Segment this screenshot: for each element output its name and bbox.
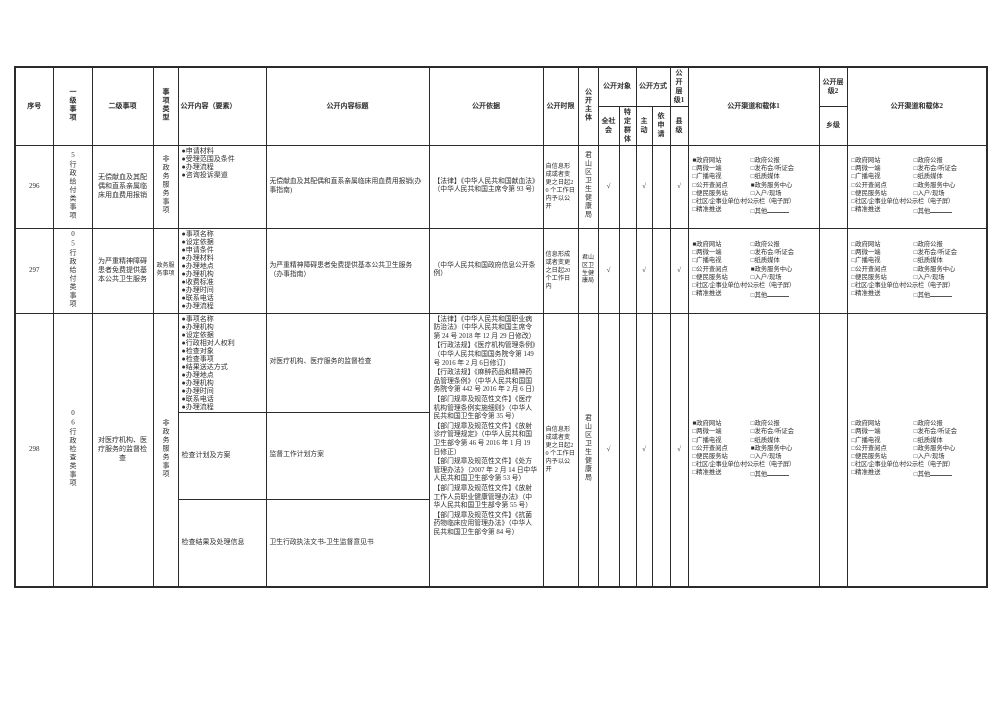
unchecked-checkbox: □纸质媒体 [751, 173, 817, 181]
unchecked-checkbox: □精准推送 [693, 206, 751, 216]
unchecked-checkbox: □公开查阅点 [693, 182, 751, 190]
bullet-item: ●办理地点 [182, 262, 263, 270]
channels-town: □政府网站□政府公报□两微一端□发布会/听证会□广播电视□纸质媒体□公开查阅点□… [847, 228, 987, 313]
level2-item: 无偿献血及其配偶和直系亲属临床用血费用报销 [92, 145, 153, 228]
bullet-item: ●办理机构 [182, 379, 263, 387]
basis-citations: 【法律】《中华人民共和国献血法》（中华人民共和国主席令第 93 号） [434, 178, 539, 195]
bullet-item: ●检查事项 [182, 355, 263, 363]
bullet-item: ●事项名称 [182, 230, 263, 238]
header-level2-item: 二级事项 [92, 67, 153, 145]
checked-checkbox: ■政府网站 [693, 241, 751, 249]
unchecked-checkbox: □入户/现场 [751, 190, 817, 198]
header-item-type: 事项类型 [153, 67, 178, 145]
bullet-item: ●联系电话 [182, 395, 263, 403]
channel-line: □公开查阅点□政务服务中心 [852, 266, 985, 274]
bullet-list: ●事项名称●办理机构●设定依据●行政相对人权利●检查对象●检查事项●结果送达方式… [182, 315, 263, 411]
header-county-level: 县级 [670, 106, 688, 145]
checked-checkbox: ■政务服务中心 [751, 182, 817, 190]
unchecked-checkbox: □公开查阅点 [693, 445, 751, 453]
header-all-society: 全社会 [598, 106, 619, 145]
header-content-title: 公开内容标题 [266, 67, 429, 145]
content-elements: ●申请材料●受理范围及条件●办理流程●咨询投诉渠道 [178, 145, 266, 228]
header-subject: 公开主体 [578, 67, 598, 145]
citation: 【部门规章及规范性文件】《抗菌药物临床应用管理办法》（中华人民共和国卫生部令第 … [434, 512, 539, 538]
bullet-item: ●办理机构 [182, 270, 263, 278]
content-title: 为严重精神障碍患者免费提供基本公共卫生服务 （办事指南） [266, 228, 429, 313]
check-town-level [819, 313, 847, 587]
unchecked-checkbox: □入户/现场 [914, 190, 984, 198]
check-town-level [819, 145, 847, 228]
content-elements: 检查计划及方案 [178, 412, 266, 499]
content-elements: 检查结果及处理信息 [178, 499, 266, 587]
channel-line: □便民服务站□入户/现场 [693, 274, 817, 282]
citation: 【法律】《中华人民共和国职业病防治法》（中华人民共和国主席令第 24 号 201… [434, 316, 539, 342]
channel-line: □广播电视□纸质媒体 [852, 437, 985, 445]
citation: 【部门规章及规范性文件】《放射诊疗管理规定》（中华人民共和国卫生部令第 46 号… [434, 423, 539, 457]
channel-line: □广播电视□纸质媒体 [852, 173, 985, 181]
channel-line: □两微一端□发布会/听证会 [852, 428, 985, 436]
header-tier1-group: 公开层级1 [670, 67, 688, 106]
table-row: 29806行政检查类事项对医疗机构、医疗服务的监督检查非政务服务事项●事项名称●… [15, 313, 987, 412]
disclosure-subject: 君山区卫生健康局 [578, 313, 598, 587]
content-title: 卫生行政执法文书-卫生监督意见书 [266, 499, 429, 587]
table-row: 29705行政给付类事项为严重精神障碍患者免费提供基本公共卫生服务政务服务事项●… [15, 228, 987, 313]
unchecked-checkbox: □政府公报 [914, 157, 984, 165]
check-town-level [819, 228, 847, 313]
channel-line: □政府网站□政府公报 [852, 241, 985, 249]
unchecked-checkbox: □其他 [751, 206, 817, 216]
channel-line: □精准推送□其他 [693, 206, 817, 216]
level1-item: 06行政检查类事项 [53, 313, 92, 587]
channel-line: □公开查阅点■政务服务中心 [693, 266, 817, 274]
unchecked-checkbox: □政府公报 [751, 157, 817, 165]
content-elements: ●事项名称●办理机构●设定依据●行政相对人权利●检查对象●检查事项●结果送达方式… [178, 313, 266, 412]
check-all-society: √ [598, 228, 619, 313]
header-serial-no: 序号 [15, 67, 53, 145]
channel-line: □精准推送□其他 [693, 469, 817, 479]
bullet-item: ●设定依据 [182, 238, 263, 246]
unchecked-checkbox: □纸质媒体 [751, 257, 817, 265]
unchecked-checkbox: □政务服务中心 [914, 182, 984, 190]
channel-line: □精准推送□其他 [852, 206, 985, 216]
bullet-item: ●办理材料 [182, 254, 263, 262]
unchecked-checkbox: □便民服务站 [852, 453, 914, 461]
citation: 【法律】《中华人民共和国献血法》（中华人民共和国主席令第 93 号） [434, 178, 539, 195]
bullet-item: ●受理范围及条件 [182, 155, 263, 163]
basis: 【法律】《中华人民共和国职业病防治法》（中华人民共和国主席令第 24 号 201… [429, 313, 543, 587]
row-number: 297 [15, 228, 53, 313]
bullet-item: ●事项名称 [182, 315, 263, 323]
header-specific-group: 特定群体 [619, 106, 636, 145]
unchecked-checkbox: □发布会/听证会 [751, 428, 817, 436]
unchecked-checkbox: □便民服务站 [852, 274, 914, 282]
unchecked-checkbox: □公开查阅点 [852, 445, 914, 453]
item-type: 政务服务事项 [153, 228, 178, 313]
unchecked-checkbox: □政务服务中心 [914, 266, 984, 274]
unchecked-checkbox: □广播电视 [693, 173, 751, 181]
citation: 【行政法规】《医疗机构管理条例》（中华人民共和国国务院令第 149 号 2016… [434, 342, 539, 368]
time-limit: 自信息形成或者变更之日起20 个工作日内予以公开 [543, 145, 578, 228]
bullet-item: ●检查对象 [182, 347, 263, 355]
unchecked-checkbox: □精准推送 [693, 469, 751, 479]
channel-line: □社区/企事业单位/村公示栏（电子屏） [693, 282, 817, 290]
channel-line: □社区/企事业单位/村公示栏（电子屏） [693, 198, 817, 206]
level1-item-text: 06行政检查类事项 [69, 409, 76, 488]
unchecked-checkbox: □其他 [914, 206, 984, 216]
unchecked-checkbox: □社区/企事业单位/村公示栏（电子屏） [693, 282, 817, 290]
header-level1-item: 一级事项 [53, 67, 92, 145]
channel-line: □精准推送□其他 [852, 290, 985, 300]
other-fill-line [930, 206, 952, 213]
check-active: √ [636, 313, 652, 587]
basis-citations: 【法律】《中华人民共和国职业病防治法》（中华人民共和国主席令第 24 号 201… [434, 316, 539, 538]
check-specific-group [619, 228, 636, 313]
bullet-list: ●申请材料●受理范围及条件●办理流程●咨询投诉渠道 [182, 147, 263, 179]
header-time-limit: 公开时限 [543, 67, 578, 145]
bullet-item: ●行政相对人权利 [182, 339, 263, 347]
bullet-item: ●联系电话 [182, 294, 263, 302]
unchecked-checkbox: □纸质媒体 [914, 173, 984, 181]
header-row-top: 序号 一级事项 二级事项 事项类型 公开内容（要素） 公开内容标题 公开依据 公… [15, 67, 987, 106]
other-fill-line [767, 290, 789, 297]
level1-item-text: 05行政给付类事项 [69, 230, 76, 309]
bullet-item: ●申请条件 [182, 246, 263, 254]
channel-line: □便民服务站□入户/现场 [693, 190, 817, 198]
level2-item: 对医疗机构、医疗服务的监督检查 [92, 313, 153, 587]
unchecked-checkbox: □广播电视 [693, 437, 751, 445]
channel-line: □广播电视□纸质媒体 [693, 173, 817, 181]
other-fill-line [767, 469, 789, 476]
check-county-level: √ [670, 313, 688, 587]
unchecked-checkbox: □广播电视 [852, 173, 914, 181]
unchecked-checkbox: □精准推送 [852, 290, 914, 300]
channel-line: □便民服务站□入户/现场 [852, 274, 985, 282]
table-row: 2965行政给付类事项无偿献血及其配偶和直系亲属临床用血费用报销非政务服务事项●… [15, 145, 987, 228]
unchecked-checkbox: □发布会/听证会 [914, 428, 984, 436]
level1-item: 05行政给付类事项 [53, 228, 92, 313]
bullet-list: ●事项名称●设定依据●申请条件●办理材料●办理地点●办理机构●收费标准●办理时间… [182, 230, 263, 310]
unchecked-checkbox: □两微一端 [852, 428, 914, 436]
unchecked-checkbox: □政府公报 [914, 241, 984, 249]
check-all-society: √ [598, 313, 619, 587]
check-all-society: √ [598, 145, 619, 228]
channel-line: □便民服务站□入户/现场 [693, 453, 817, 461]
bullet-item: ●结果送达方式 [182, 363, 263, 371]
disclosure-subject-text: 君山区卫生健康局 [585, 414, 592, 482]
item-type: 非政务服务事项 [153, 145, 178, 228]
bullet-item: ●设定依据 [182, 331, 263, 339]
unchecked-checkbox: □其他 [914, 469, 984, 479]
bullet-item: ●办理流程 [182, 403, 263, 411]
unchecked-checkbox: □入户/现场 [914, 453, 984, 461]
channel-line: □政府网站□政府公报 [852, 157, 985, 165]
item-type: 非政务服务事项 [153, 313, 178, 587]
disclosure-subject-text: 君山区卫生健康局 [585, 151, 592, 219]
unchecked-checkbox: □精准推送 [693, 290, 751, 300]
unchecked-checkbox: □精准推送 [852, 469, 914, 479]
channel-line: ■政府网站□政府公报 [693, 157, 817, 165]
unchecked-checkbox: □政务服务中心 [914, 445, 984, 453]
time-limit: 自信息形成或者变更之日起20 个工作日内予以公开 [543, 313, 578, 587]
channels-town: □政府网站□政府公报□两微一端□发布会/听证会□广播电视□纸质媒体□公开查阅点□… [847, 313, 987, 587]
unchecked-checkbox: □社区/企事业单位/村公示栏（电子屏） [852, 282, 985, 290]
checked-checkbox: ■政务服务中心 [751, 266, 817, 274]
bullet-item: ●办理时间 [182, 286, 263, 294]
unchecked-checkbox: □广播电视 [852, 437, 914, 445]
check-county-level: √ [670, 145, 688, 228]
item-type-text: 非政务服务事项 [162, 155, 169, 215]
bullet-item: ●办理流程 [182, 163, 263, 171]
basis: 【法律】《中华人民共和国献血法》（中华人民共和国主席令第 93 号） [429, 145, 543, 228]
bullet-item: ●收费标准 [182, 278, 263, 286]
check-active: √ [636, 145, 652, 228]
content-title: 无偿献血及其配偶和直系亲属临床用血费用报销(办事指南) [266, 145, 429, 228]
channel-line: □公开查阅点□政务服务中心 [852, 445, 985, 453]
channel-line: □精准推送□其他 [852, 469, 985, 479]
basis: （中华人民共和国政府信息公开条例） [429, 228, 543, 313]
citation: （中华人民共和国政府信息公开条例） [434, 262, 539, 279]
unchecked-checkbox: □其他 [751, 290, 817, 300]
channel-line: □公开查阅点■政务服务中心 [693, 182, 817, 190]
unchecked-checkbox: □其他 [751, 469, 817, 479]
check-specific-group [619, 145, 636, 228]
header-town-level: 乡级 [819, 106, 847, 145]
channel-line: □便民服务站□入户/现场 [852, 453, 985, 461]
channels-county: ■政府网站□政府公报□两微一端□发布会/听证会□广播电视□纸质媒体□公开查阅点■… [688, 145, 819, 228]
channel-line: □广播电视□纸质媒体 [693, 437, 817, 445]
bullet-item: ●咨询投诉渠道 [182, 171, 263, 179]
channel-line: □广播电视□纸质媒体 [852, 257, 985, 265]
unchecked-checkbox: □公开查阅点 [852, 182, 914, 190]
channel-line: □社区/企事业单位/村公示栏（电子屏） [852, 282, 985, 290]
level2-item: 为严重精神障碍患者免费提供基本公共卫生服务 [92, 228, 153, 313]
bullet-item: ●办理时间 [182, 387, 263, 395]
unchecked-checkbox: □政府网站 [852, 157, 914, 165]
check-on-request [652, 313, 670, 587]
unchecked-checkbox: □便民服务站 [852, 190, 914, 198]
unchecked-checkbox: □两微一端 [693, 428, 751, 436]
check-on-request [652, 145, 670, 228]
channel-line: □公开查阅点□政务服务中心 [852, 182, 985, 190]
unchecked-checkbox: □社区/企事业单位/村公示栏（电子屏） [693, 198, 817, 206]
row-number: 298 [15, 313, 53, 587]
channels-town: □政府网站□政府公报□两微一端□发布会/听证会□广播电视□纸质媒体□公开查阅点□… [847, 145, 987, 228]
header-tier2-group: 公开层级2 [819, 67, 847, 106]
channel-line: ■政府网站□政府公报 [693, 241, 817, 249]
disclosure-subject: 君山区卫生健康局 [578, 145, 598, 228]
check-on-request [652, 228, 670, 313]
other-fill-line [930, 290, 952, 297]
basis-citations: （中华人民共和国政府信息公开条例） [434, 262, 539, 279]
unchecked-checkbox: □社区/企事业单位/村公示栏（电子屏） [852, 198, 985, 206]
header-on-request: 依申请 [652, 106, 670, 145]
unchecked-checkbox: □政府网站 [852, 241, 914, 249]
header-channels1: 公开渠道和载体1 [688, 67, 819, 145]
unchecked-checkbox: □政府公报 [751, 241, 817, 249]
channel-line: □便民服务站□入户/现场 [852, 190, 985, 198]
header-basis: 公开依据 [429, 67, 543, 145]
unchecked-checkbox: □便民服务站 [693, 453, 751, 461]
unchecked-checkbox: □入户/现场 [914, 274, 984, 282]
level1-item: 5行政给付类事项 [53, 145, 92, 228]
item-type-text: 非政务服务事项 [162, 419, 169, 479]
other-fill-line [930, 469, 952, 476]
disclosure-table: 序号 一级事项 二级事项 事项类型 公开内容（要素） 公开内容标题 公开依据 公… [14, 66, 988, 588]
channel-line: □社区/企事业单位/村公示栏（电子屏） [852, 198, 985, 206]
unchecked-checkbox: □公开查阅点 [852, 266, 914, 274]
row-number: 296 [15, 145, 53, 228]
content-elements: ●事项名称●设定依据●申请条件●办理材料●办理地点●办理机构●收费标准●办理时间… [178, 228, 266, 313]
header-target-group: 公开对象 [598, 67, 636, 106]
unchecked-checkbox: □其他 [914, 290, 984, 300]
table-header: 序号 一级事项 二级事项 事项类型 公开内容（要素） 公开内容标题 公开依据 公… [15, 67, 987, 145]
content-title: 监督工作计划方案 [266, 412, 429, 499]
channel-line: □两微一端□发布会/听证会 [693, 428, 817, 436]
document-page: 序号 一级事项 二级事项 事项类型 公开内容（要素） 公开内容标题 公开依据 公… [0, 0, 1000, 706]
level1-item-text: 5行政给付类事项 [69, 151, 76, 220]
bullet-item: ●办理机构 [182, 323, 263, 331]
unchecked-checkbox: □纸质媒体 [751, 437, 817, 445]
disclosure-subject: 君山区卫生健康局 [578, 228, 598, 313]
unchecked-checkbox: □公开查阅点 [693, 266, 751, 274]
bullet-item: ●申请材料 [182, 147, 263, 155]
citation: 【部门规章及规范性文件】《处方管理办法》（2007 年 2 月 14 日中华人民… [434, 458, 539, 484]
channel-line: □精准推送□其他 [693, 290, 817, 300]
unchecked-checkbox: □精准推送 [852, 206, 914, 216]
content-title: 对医疗机构、医疗服务的监督检查 [266, 313, 429, 412]
channels-county: ■政府网站□政府公报□两微一端□发布会/听证会□广播电视□纸质媒体□公开查阅点■… [688, 228, 819, 313]
citation: 【部门规章及规范性文件】《放射工作人员职业健康管理办法》（中华人民共和国卫生部令… [434, 485, 539, 511]
other-fill-line [767, 206, 789, 213]
unchecked-checkbox: □入户/现场 [751, 453, 817, 461]
header-channels2: 公开渠道和载体2 [847, 67, 987, 145]
unchecked-checkbox: □广播电视 [852, 257, 914, 265]
channel-line: □广播电视□纸质媒体 [693, 257, 817, 265]
unchecked-checkbox: □纸质媒体 [914, 257, 984, 265]
bullet-item: ●办理地点 [182, 371, 263, 379]
checked-checkbox: ■政务服务中心 [751, 445, 817, 453]
bullet-item: ●办理流程 [182, 302, 263, 310]
header-mode-group: 公开方式 [636, 67, 670, 106]
unchecked-checkbox: □便民服务站 [693, 190, 751, 198]
unchecked-checkbox: □广播电视 [693, 257, 751, 265]
header-content-elements: 公开内容（要素） [178, 67, 266, 145]
check-county-level: √ [670, 228, 688, 313]
header-active: 主动 [636, 106, 652, 145]
citation: 【行政法规】《麻醉药品和精神药品管理条例》（中华人民共和国国务院令第 442 号… [434, 369, 539, 395]
unchecked-checkbox: □纸质媒体 [914, 437, 984, 445]
time-limit: 信息形成或者变更之日起20个工作日内 [543, 228, 578, 313]
unchecked-checkbox: □入户/现场 [751, 274, 817, 282]
channel-line: □公开查阅点■政务服务中心 [693, 445, 817, 453]
table-body: 2965行政给付类事项无偿献血及其配偶和直系亲属临床用血费用报销非政务服务事项●… [15, 145, 987, 587]
checked-checkbox: ■政府网站 [693, 157, 751, 165]
citation: 【部门规章及规范性文件】《医疗机构管理条例实施细则》（中华人民共和国卫生部令第 … [434, 396, 539, 422]
channels-county: ■政府网站□政府公报□两微一端□发布会/听证会□广播电视□纸质媒体□公开查阅点■… [688, 313, 819, 587]
unchecked-checkbox: □便民服务站 [693, 274, 751, 282]
check-active: √ [636, 228, 652, 313]
check-specific-group [619, 313, 636, 587]
